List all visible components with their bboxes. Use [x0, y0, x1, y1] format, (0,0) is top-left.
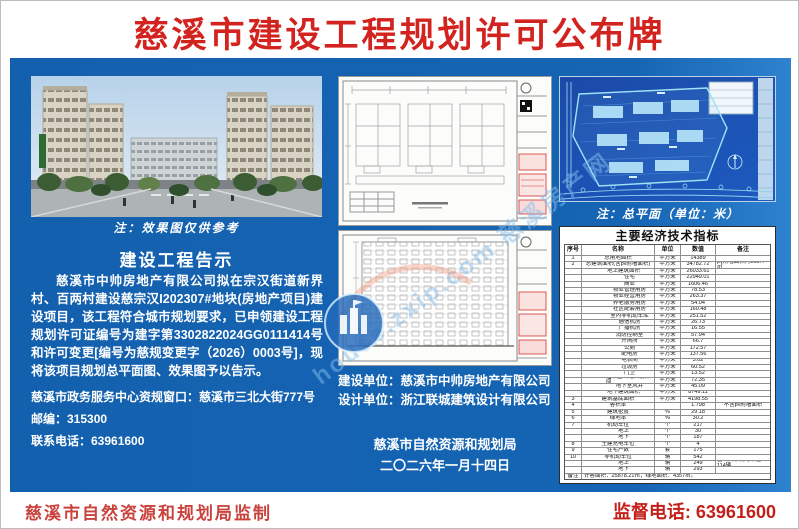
page-title: 慈溪市建设工程规划许可公布牌	[1, 7, 798, 58]
building-rendering-graphic	[31, 76, 322, 217]
economic-indicator-table: 主要经济技术指标 序号 名称 单位 数值 备注 1总用地面积平方米143892总…	[559, 226, 776, 484]
site-plan-caption: 注：总平面（单位：米）	[559, 205, 776, 222]
notice-board-page: 慈溪市建设工程规划许可公布牌	[0, 0, 799, 529]
builder-line: 建设单位：慈溪市中帅房地产有限公司	[338, 372, 558, 391]
elevation-drawing	[346, 238, 514, 346]
table-grid: 序号 名称 单位 数值 备注 1总用地面积平方米143892总建筑面积(含pv附…	[564, 244, 771, 480]
elevation-sheet	[338, 230, 552, 366]
notice-title: 建设工程告示	[31, 246, 322, 271]
header-value: 数值	[681, 245, 716, 255]
table-title: 主要经济技术指标	[564, 229, 771, 244]
contact-block: 慈溪市政务服务中心资规窗口：慈溪市三北大街777号 邮编：315300 联系电话…	[31, 386, 331, 452]
green-banner	[39, 134, 46, 168]
blue-panel: 注：效果图仅供参考 建设工程告示 慈溪市中帅房地产有限公司拟在宗汉街道新界村、百…	[10, 58, 791, 492]
designer-line: 设计单位：浙江联城建筑设计有限公司	[338, 391, 558, 410]
floor-plan-sheet	[338, 76, 552, 226]
supervising-authority: 慈溪市自然资源和规划局监制	[25, 499, 272, 524]
issuer-name: 慈溪市自然资源和规划局	[338, 434, 552, 455]
issuer-block: 慈溪市自然资源和规划局 二〇二六年一月十四日	[338, 434, 552, 476]
units-block: 建设单位：慈溪市中帅房地产有限公司 设计单位：浙江联城建筑设计有限公司	[338, 372, 558, 410]
red-approval-stamps	[519, 292, 546, 354]
header-unit: 单位	[655, 245, 681, 255]
issue-date: 二〇二六年一月十四日	[338, 455, 552, 476]
qr-code-mark	[520, 100, 532, 112]
header-name: 名称	[582, 245, 655, 255]
phone-line: 联系电话：63961600	[31, 430, 331, 452]
red-approval-stamps	[519, 154, 546, 214]
table-header-row: 序号 名称 单位 数值 备注	[565, 245, 770, 255]
table-cell: 计容面积：25878.21㎡，绿地面积：4357㎡。	[582, 474, 770, 479]
table-cell: 备注	[565, 474, 582, 479]
site-plan-blueprint	[559, 76, 776, 202]
postcode-line: 邮编：315300	[31, 408, 331, 430]
table-row: 备注计容面积：25878.21㎡，绿地面积：4357㎡。	[565, 473, 770, 479]
rendering-image	[31, 76, 322, 217]
table-body: 1总用地面积平方米143892总建筑面积(含pv附墙面积)平方米34782.72…	[565, 255, 770, 479]
header-sn: 序号	[565, 245, 582, 255]
header-note: 备注	[716, 245, 770, 255]
notice-body: 慈溪市中帅房地产有限公司拟在宗汉街道新界村、百两村建设慈宗汉I202307#地块…	[31, 272, 323, 380]
office-line: 慈溪市政务服务中心资规窗口：慈溪市三北大街777号	[31, 386, 331, 408]
rendering-caption: 注：效果图仅供参考	[31, 219, 322, 236]
supervision-phone: 监督电话: 63961600	[613, 498, 776, 524]
